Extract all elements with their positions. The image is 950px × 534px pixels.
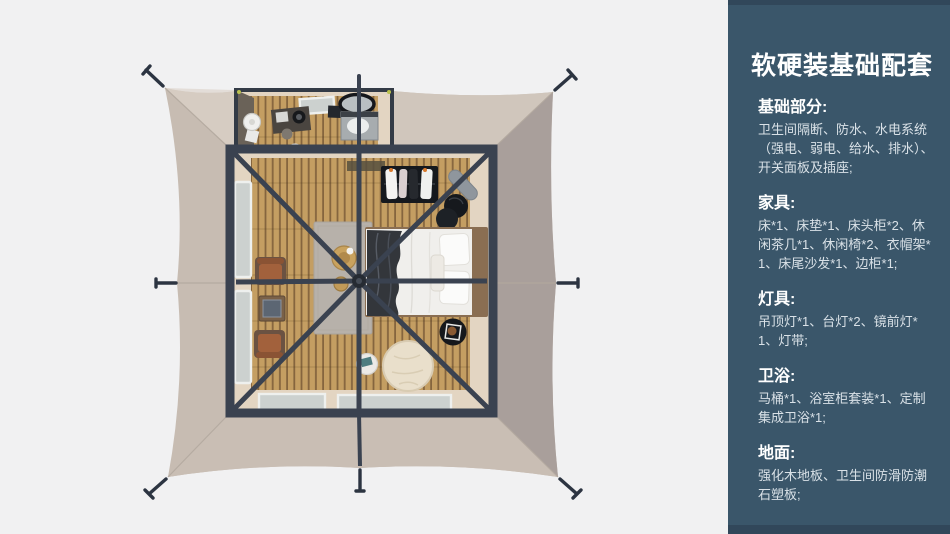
section-heading: 地面: <box>758 443 934 464</box>
section-body: 吊顶灯*1、台灯*2、镜前灯*1、灯带; <box>758 312 934 350</box>
section-basics: 基础部分: 卫生间隔断、防水、水电系统（强电、弱电、给水、排水）、开关面板及插座… <box>758 97 934 177</box>
section-furniture: 家具: 床*1、床垫*1、床头柜*2、休闲茶几*1、休闲椅*2、衣帽架*1、床尾… <box>758 193 934 273</box>
section-bathroom: 卫浴: 马桶*1、浴室柜套装*1、定制集成卫浴*1; <box>758 366 934 427</box>
hanging-garment <box>385 169 398 200</box>
vanity-stool <box>282 129 293 140</box>
section-lighting: 灯具: 吊顶灯*1、台灯*2、镜前灯*1、灯带; <box>758 289 934 350</box>
canvas-right-facet <box>497 92 558 477</box>
info-panel: 软硬装基础配套 基础部分: 卫生间隔断、防水、水电系统（强电、弱电、给水、排水）… <box>728 0 950 534</box>
page: 软硬装基础配套 基础部分: 卫生间隔断、防水、水电系统（强电、弱电、给水、排水）… <box>0 0 950 534</box>
hanging-garment <box>420 169 433 200</box>
tent-plan-svg <box>0 0 728 534</box>
section-heading: 基础部分: <box>758 97 934 118</box>
hanging-garment <box>398 169 407 198</box>
bottom-window-left <box>259 394 325 411</box>
tea-table <box>259 296 285 321</box>
corner-accent <box>237 90 241 94</box>
lumbar-pillow <box>431 255 444 291</box>
bathroom <box>236 90 392 151</box>
wardrobe-rack <box>381 166 438 203</box>
section-body: 马桶*1、浴室柜套装*1、定制集成卫浴*1; <box>758 389 934 427</box>
hanger-hook <box>389 168 393 172</box>
panel-title: 软硬装基础配套 <box>750 52 934 80</box>
corner-accent <box>387 90 391 94</box>
tent-top-view-render <box>0 0 728 534</box>
bottom-center-pole <box>359 413 360 466</box>
left-window-lower <box>235 291 251 383</box>
hanger-hook <box>423 168 427 172</box>
hanging-garment <box>408 169 418 199</box>
section-flooring: 地面: 强化木地板、卫生间防滑防潮石塑板; <box>758 443 934 504</box>
section-body: 强化木地板、卫生间防滑防潮石塑板; <box>758 466 934 504</box>
tray-table <box>440 319 467 346</box>
left-window-upper <box>235 182 251 277</box>
section-body: 卫生间隔断、防水、水电系统（强电、弱电、给水、排水）、开关面板及插座; <box>758 120 934 177</box>
section-body: 床*1、床垫*1、床头柜*2、休闲茶几*1、休闲椅*2、衣帽架*1、床尾沙发*1… <box>758 216 934 273</box>
section-heading: 卫浴: <box>758 366 934 387</box>
section-heading: 灯具: <box>758 289 934 310</box>
door-mat <box>347 161 385 171</box>
leisure-chair-lower <box>254 330 285 358</box>
section-heading: 家具: <box>758 193 934 214</box>
